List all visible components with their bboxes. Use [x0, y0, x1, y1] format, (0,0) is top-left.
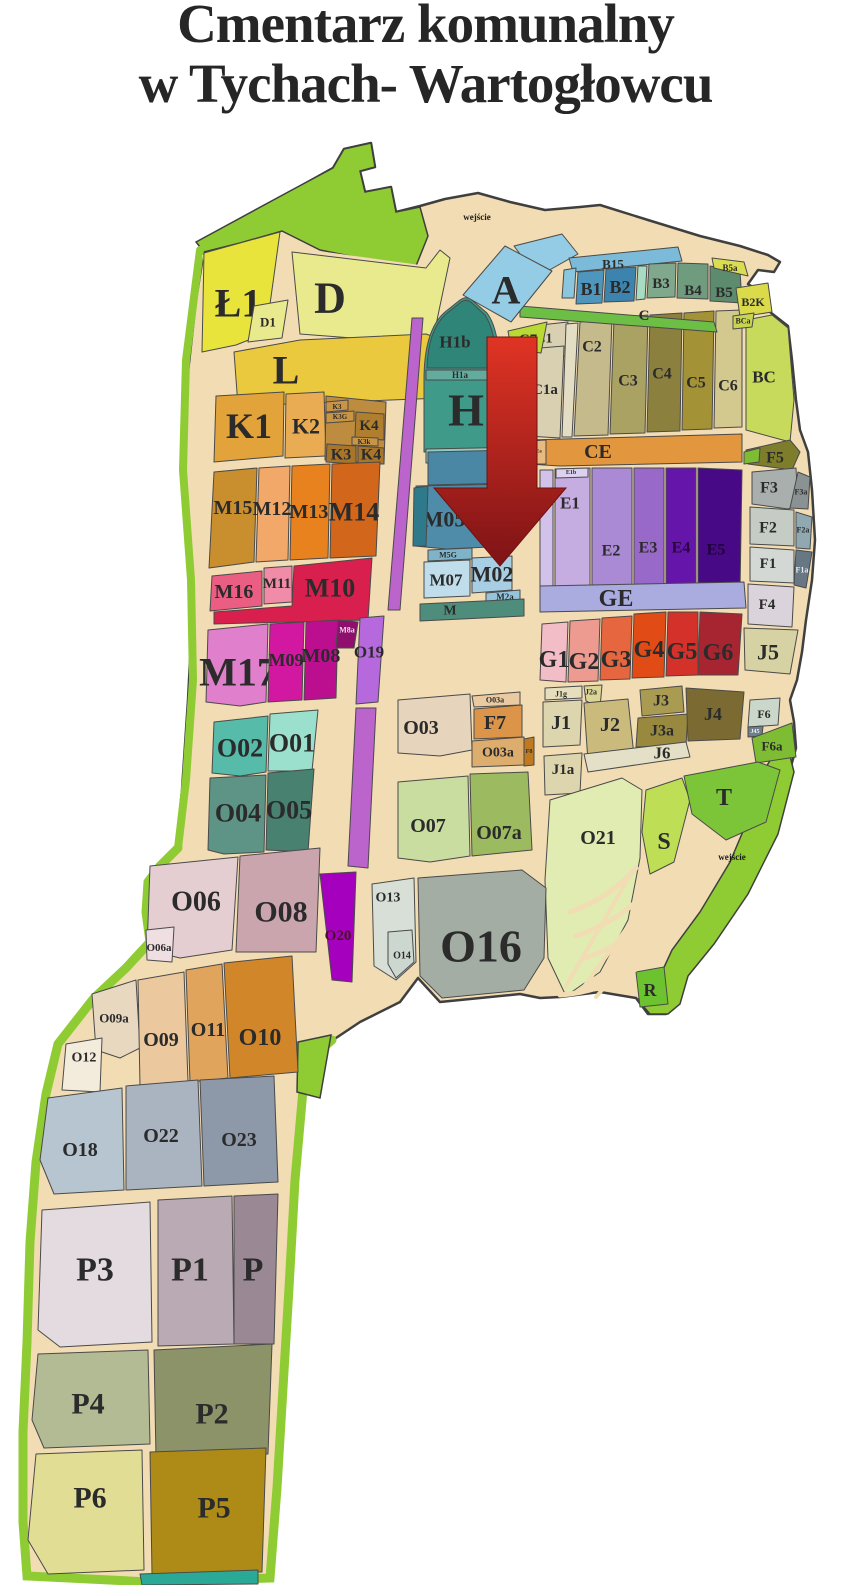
section-label-F3a: F3a — [795, 488, 808, 497]
section-label-J2a: J2a — [585, 688, 597, 697]
section-label-G4: G4 — [634, 637, 665, 663]
section-label-C3: C3 — [618, 373, 638, 390]
section-label-J1g: J1g — [555, 690, 567, 699]
section-M05sl — [413, 486, 428, 546]
section-label-J2: J2 — [600, 714, 620, 736]
section-label-G6: G6 — [703, 640, 734, 666]
section-label-B5a: B5a — [722, 263, 738, 273]
section-label-O04: O04 — [215, 799, 261, 828]
section-label-C6: C6 — [718, 378, 738, 395]
section-label-F1: F1 — [760, 556, 777, 572]
section-label-E3: E3 — [639, 540, 658, 557]
section-label-H: H — [448, 385, 484, 436]
section-E2 — [592, 468, 632, 592]
section-label-O03a2: O03a — [482, 746, 514, 761]
section-label-G1: G1 — [539, 647, 570, 673]
section-label-M8a: M8a — [339, 626, 355, 635]
section-label-BC: BC — [752, 368, 776, 387]
section-label-E5: E5 — [707, 542, 726, 559]
section-label-E1b: E1b — [566, 470, 577, 476]
section-label-M15: M15 — [214, 497, 253, 519]
section-label-P1: P1 — [171, 1252, 209, 1289]
section-label-O01: O01 — [269, 729, 315, 758]
section-label-K3b: K3 — [331, 447, 351, 464]
section-label-F2a: F2a — [797, 526, 810, 535]
section-label-O23: O23 — [221, 1129, 257, 1151]
section-label-L: L — [273, 348, 300, 393]
section-O10 — [224, 956, 298, 1078]
green-area-4 — [297, 1035, 331, 1098]
section-label-J3: J3 — [653, 693, 669, 710]
section-label-O08: O08 — [254, 896, 307, 929]
section-label-O03a1: O03a — [486, 696, 504, 705]
section-label-C2: C2 — [582, 339, 602, 356]
section-label-Mstrip: M — [443, 604, 456, 619]
section-label-M09: M09 — [269, 650, 304, 670]
section-label-B1: B1 — [580, 279, 601, 299]
section-label-C5: C5 — [686, 375, 706, 392]
section-label-G5: G5 — [667, 639, 698, 665]
section-label-B5: B5 — [715, 285, 733, 301]
section-label-B2K: B2K — [741, 295, 765, 309]
section-label-F7: F7 — [484, 712, 506, 734]
section-label-K1: K1 — [226, 406, 272, 446]
section-label-K4a: K4 — [359, 418, 379, 434]
section-label-K2: K2 — [292, 414, 320, 439]
section-label-M5G: M5G — [439, 551, 457, 560]
section-label-O20: O20 — [325, 928, 352, 944]
section-label-R: R — [644, 980, 658, 1000]
section-label-O18: O18 — [62, 1139, 98, 1161]
map-canvas: Ł1DD1LK1K2K3K3GK4K3kK3K4M15M12M13M14M16M… — [0, 0, 851, 1585]
section-label-O14: O14 — [393, 951, 411, 962]
section-label-G3: G3 — [601, 647, 632, 673]
section-label-H1b: H1b — [439, 333, 470, 352]
section-label-B3: B3 — [652, 276, 670, 292]
section-label-M10: M10 — [305, 574, 356, 603]
section-label-O21: O21 — [580, 827, 616, 849]
section-label-M16: M16 — [215, 581, 254, 603]
section-label-P5: P5 — [197, 1492, 230, 1525]
section-CE — [528, 434, 742, 466]
title-line-1: Cmentarz komunalny — [0, 0, 851, 54]
title-line-2: w Tychach- Wartogłowcu — [0, 54, 851, 114]
section-label-K3G: K3G — [333, 413, 348, 421]
section-label-J4: J4 — [704, 704, 722, 724]
section-label-O09: O09 — [143, 1029, 179, 1051]
section-label-BCa: BCa — [735, 317, 750, 326]
section-label-J45: J45 — [751, 729, 760, 735]
section-label-O12: O12 — [72, 1051, 97, 1066]
section-label-M08: M08 — [302, 645, 341, 667]
section-label-O09a: O09a — [99, 1011, 129, 1026]
section-label-M11: M11 — [263, 576, 291, 592]
section-label-P: P — [243, 1252, 264, 1289]
section-E5 — [698, 468, 742, 592]
section-label-O11: O11 — [191, 1019, 225, 1041]
section-label-P2: P2 — [195, 1398, 228, 1431]
section-label-K3k: K3k — [358, 438, 371, 446]
section-label-J6: J6 — [654, 744, 671, 763]
section-label-O19: O19 — [354, 643, 384, 662]
section-label-F8: F8 — [526, 749, 533, 755]
section-label-E1: E1 — [560, 494, 580, 513]
cemetery-map: Ł1DD1LK1K2K3K3GK4K3kK3K4M15M12M13M14M16M… — [0, 0, 851, 1585]
section-label-O02: O02 — [217, 734, 263, 763]
section-label-O07: O07 — [410, 815, 446, 837]
section-label-O05: O05 — [266, 796, 312, 825]
section-label-O07a: O07a — [476, 822, 522, 844]
section-label-F1a: F1a — [796, 566, 809, 575]
section-E4 — [666, 468, 696, 592]
section-label-GE: GE — [599, 586, 634, 612]
section-GE — [540, 582, 746, 612]
entrance-label-0: wejście — [463, 212, 490, 222]
section-label-F6a: F6a — [762, 739, 783, 754]
section-label-P3: P3 — [76, 1252, 114, 1289]
section-label-F3: F3 — [760, 480, 778, 497]
section-label-P4: P4 — [71, 1388, 104, 1421]
section-label-F4: F4 — [759, 597, 776, 613]
section-label-E2: E2 — [602, 543, 621, 560]
section-label-H1a: H1a — [452, 370, 469, 380]
section-label-K3s: K3 — [333, 403, 342, 411]
section-E3 — [634, 468, 664, 592]
section-label-C4: C4 — [652, 366, 672, 383]
section-label-F6: F6 — [757, 707, 770, 721]
section-label-E4: E4 — [672, 540, 691, 557]
section-label-O03: O03 — [403, 717, 439, 739]
section-label-J1a: J1a — [552, 762, 575, 778]
section-label-O10: O10 — [239, 1025, 282, 1051]
map-title: Cmentarz komunalny w Tychach- Wartogłowc… — [0, 0, 851, 114]
section-label-M02: M02 — [471, 562, 514, 587]
entrance-label-1: wejście — [718, 852, 745, 862]
section-label-O22: O22 — [143, 1125, 179, 1147]
section-label-O06a: O06a — [146, 942, 172, 954]
section-label-J3a: J3a — [650, 723, 674, 740]
section-label-S: S — [657, 829, 670, 855]
section-label-F2: F2 — [759, 520, 777, 537]
section-label-P6: P6 — [73, 1482, 106, 1515]
section-B1K — [562, 268, 576, 298]
section-label-F5: F5 — [766, 450, 784, 467]
section-label-CE: CE — [584, 441, 612, 463]
section-label-M14: M14 — [329, 498, 380, 527]
section-C2 — [574, 318, 612, 436]
section-label-D1: D1 — [260, 315, 276, 330]
section-label-M12: M12 — [253, 498, 292, 520]
section-label-K4b: K4 — [361, 447, 381, 464]
section-label-A: A — [492, 268, 521, 313]
section-label-D: D — [314, 274, 346, 323]
section-label-O06: O06 — [171, 887, 221, 918]
section-label-O16: O16 — [440, 921, 522, 972]
section-label-M17: M17 — [199, 650, 277, 695]
section-label-M13: M13 — [290, 501, 329, 523]
section-label-M07: M07 — [429, 571, 463, 590]
section-label-B4: B4 — [684, 283, 702, 299]
section-label-Cstrip: C — [639, 308, 650, 324]
section-label-J1: J1 — [551, 712, 571, 734]
section-label-J5: J5 — [757, 640, 779, 665]
section-B23 — [636, 266, 647, 300]
section-label-B2: B2 — [609, 277, 630, 297]
section-label-T: T — [716, 785, 732, 811]
section-label-G2: G2 — [569, 649, 600, 675]
section-label-O13: O13 — [376, 891, 401, 906]
section-E1 — [555, 468, 590, 592]
